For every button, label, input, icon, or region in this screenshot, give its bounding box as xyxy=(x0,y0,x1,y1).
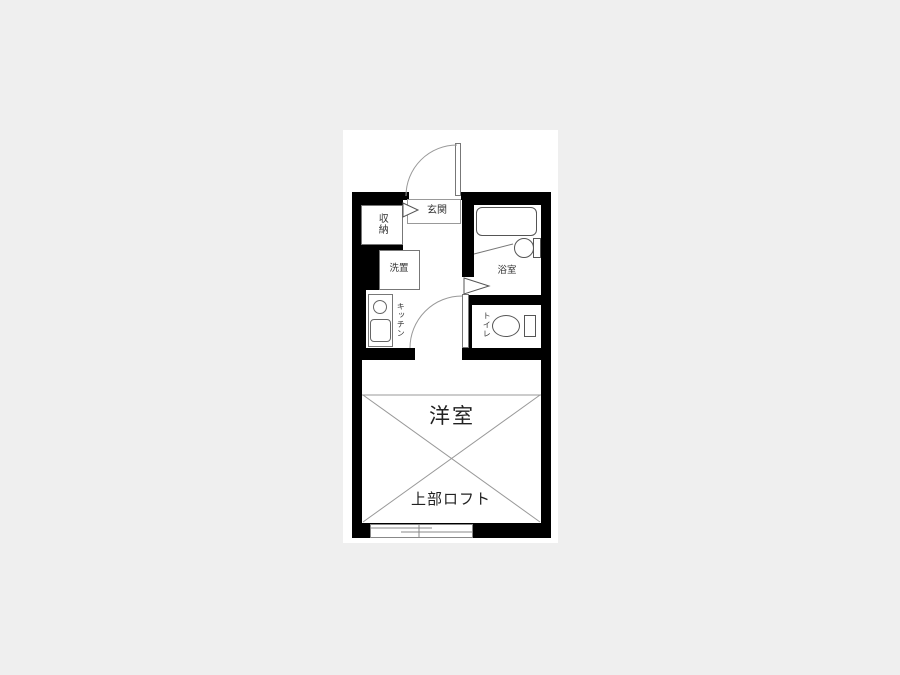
bathroom-doorway-opening xyxy=(462,277,474,295)
toilet-tank-icon xyxy=(524,315,536,337)
kitchen-sink-icon xyxy=(370,319,391,342)
entrance-label: 玄関 xyxy=(427,206,447,217)
kitchen-burner-icon xyxy=(373,300,387,314)
room-door-leaf xyxy=(462,294,469,348)
loft-label: 上部ロフト xyxy=(411,492,491,508)
bathroom-label: 浴室 xyxy=(497,266,516,276)
bathtub-icon xyxy=(476,207,537,236)
bath-drain-circle-icon xyxy=(514,238,534,258)
room-doorway-opening xyxy=(415,348,462,360)
storage-label: 収納 xyxy=(376,213,387,235)
kitchen-label: キッチン xyxy=(396,302,404,338)
western-room-label: 洋室 xyxy=(429,405,475,427)
laundry-label: 洗置 xyxy=(389,264,408,274)
entry-door-leaf xyxy=(455,143,461,196)
toilet-label: トイレ xyxy=(482,312,490,339)
toilet-bowl-icon xyxy=(492,315,520,337)
bath-faucet-panel-icon xyxy=(533,238,541,258)
window xyxy=(370,524,473,538)
floorplan-page: 玄関 収納 洗置 キッチン 浴室 トイレ 洋室 上部ロフト xyxy=(0,0,900,675)
